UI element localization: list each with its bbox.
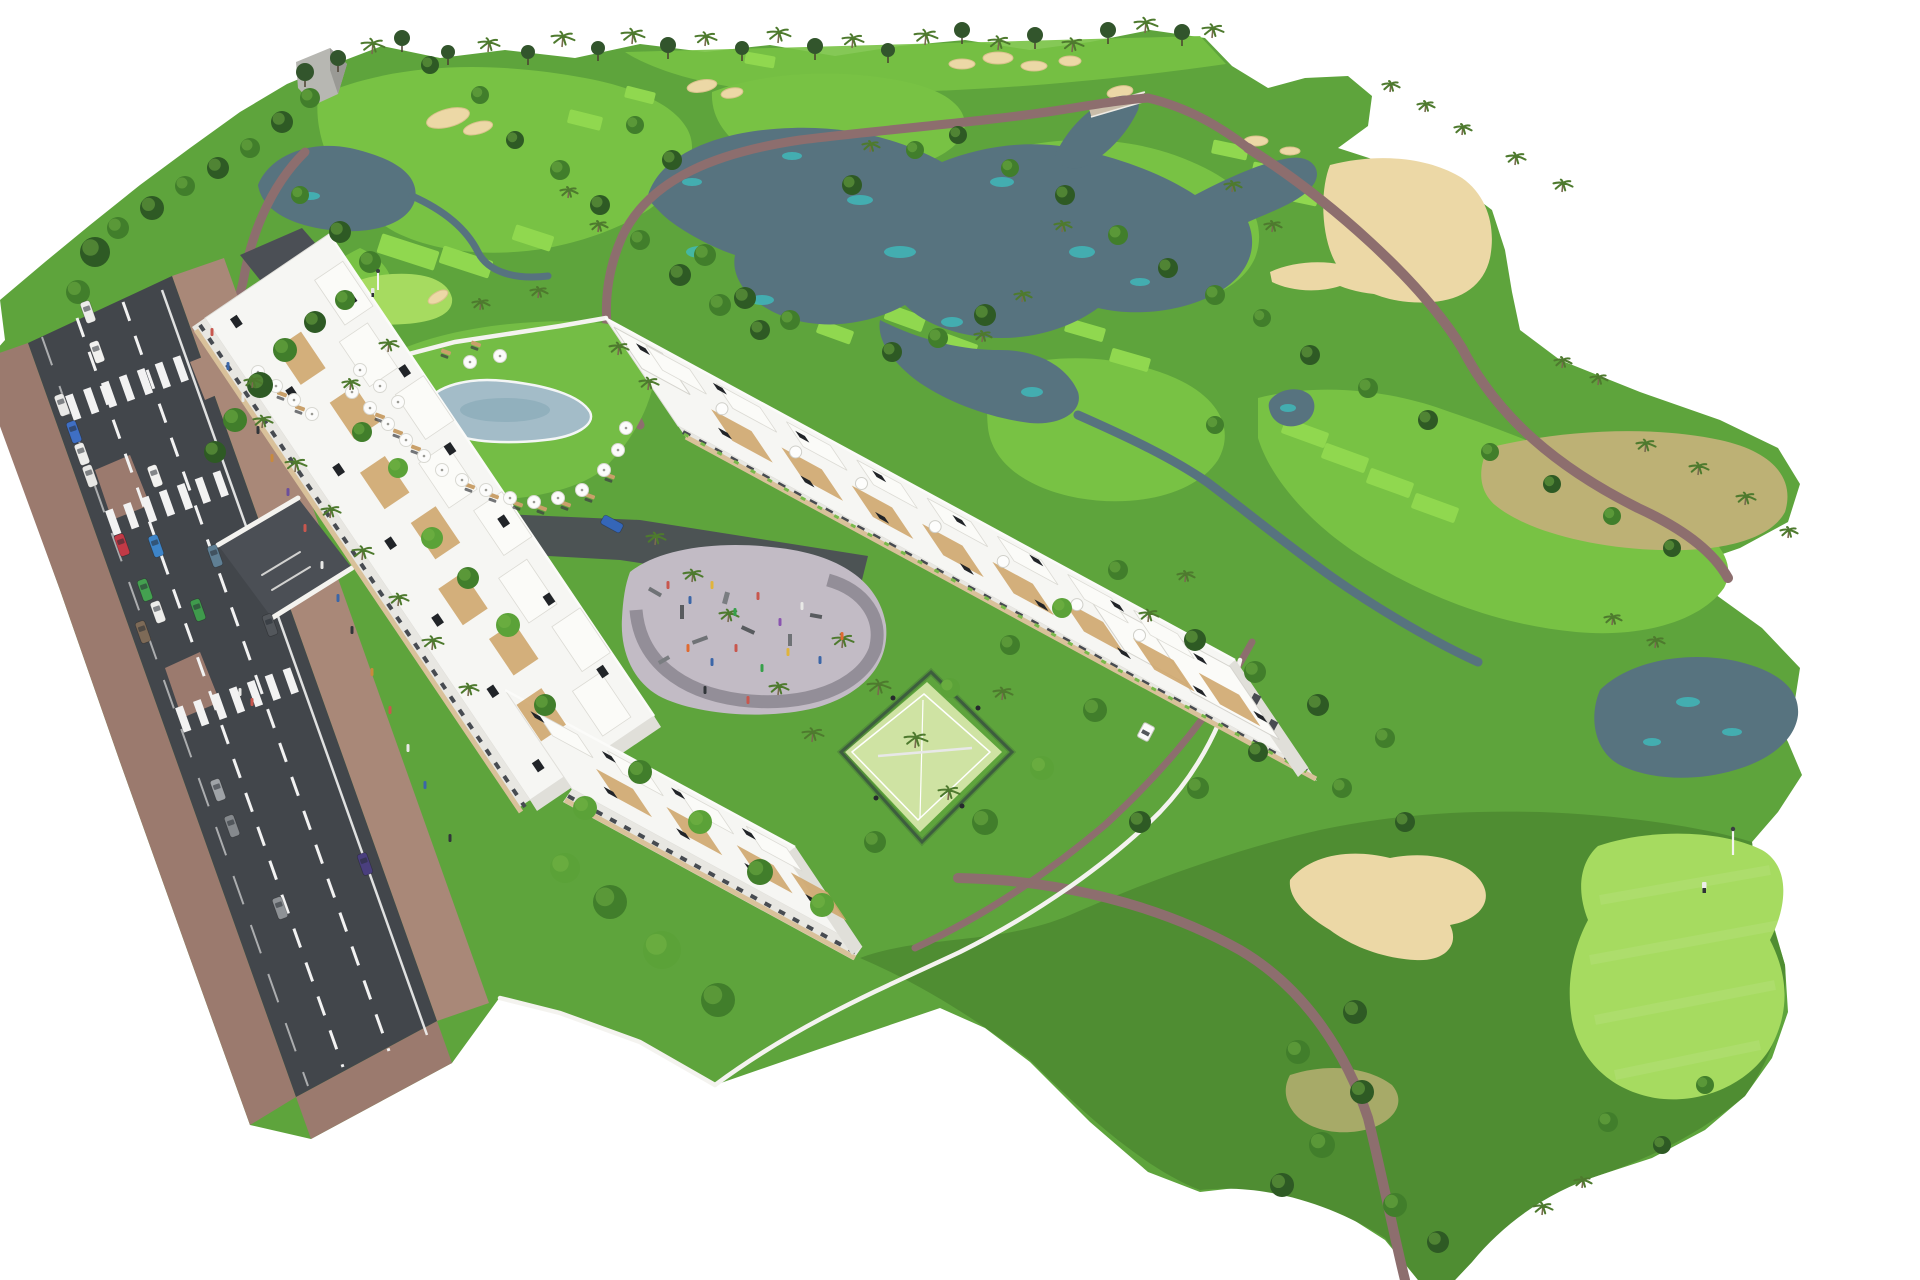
shallow-water-patch xyxy=(1130,278,1150,286)
aerial-render-golf-resort xyxy=(0,0,1920,1280)
person xyxy=(761,664,764,672)
horizon-tree xyxy=(591,41,605,55)
horizon-tree xyxy=(296,63,314,81)
person xyxy=(251,698,254,706)
play-equipment xyxy=(680,605,684,619)
person xyxy=(337,594,340,602)
bunker xyxy=(1280,147,1300,155)
person xyxy=(687,644,690,652)
shallow-water-patch xyxy=(1021,387,1043,397)
bunker xyxy=(1021,61,1047,71)
person xyxy=(449,834,452,842)
shallow-water-patch xyxy=(884,246,916,258)
horizon-tree xyxy=(881,43,895,57)
person xyxy=(689,596,692,604)
person xyxy=(735,644,738,652)
person xyxy=(819,656,822,664)
person xyxy=(227,362,230,370)
person xyxy=(257,426,260,434)
horizon-tree xyxy=(1174,24,1190,40)
person xyxy=(779,618,782,626)
horizon-tree xyxy=(521,45,535,59)
person xyxy=(424,781,427,789)
shallow-water-patch xyxy=(847,195,873,205)
shallow-water-patch xyxy=(782,152,802,160)
person xyxy=(389,706,392,714)
horizon-tree xyxy=(394,30,410,46)
person xyxy=(271,454,274,462)
horizon-tree xyxy=(660,37,676,53)
shallow-water-patch xyxy=(1280,404,1296,412)
scene-svg xyxy=(0,0,1920,1280)
person xyxy=(407,744,410,752)
person xyxy=(787,648,790,656)
roof-parasol xyxy=(929,521,941,533)
shallow-water-patch xyxy=(1722,728,1742,736)
shallow-water-patch xyxy=(1643,738,1661,746)
horizon-tree xyxy=(954,22,970,38)
person xyxy=(841,632,844,640)
horizon-tree xyxy=(330,50,346,66)
person xyxy=(287,488,290,496)
person xyxy=(321,561,324,569)
roof-parasol xyxy=(855,477,867,489)
pool-deep-end xyxy=(460,398,550,422)
bunker xyxy=(983,52,1013,64)
person xyxy=(239,688,242,696)
person xyxy=(667,581,670,589)
person xyxy=(711,658,714,666)
roof-parasol xyxy=(790,446,802,458)
person xyxy=(801,602,804,610)
horizon-tree xyxy=(1027,27,1043,43)
person xyxy=(211,328,214,336)
horizon-tree xyxy=(735,41,749,55)
roof-parasol xyxy=(716,403,728,415)
horizon-tree xyxy=(441,45,455,59)
bunker xyxy=(1059,56,1081,66)
shallow-water-patch xyxy=(990,177,1014,187)
horizon-tree xyxy=(807,38,823,54)
roof-parasol xyxy=(1133,629,1145,641)
person xyxy=(747,696,750,704)
person xyxy=(371,668,374,676)
playground xyxy=(622,545,887,715)
person xyxy=(711,581,714,589)
person xyxy=(704,686,707,694)
roof-parasol xyxy=(997,555,1009,567)
shallow-water-patch xyxy=(1676,697,1700,707)
horizon-tree xyxy=(1100,22,1116,38)
shallow-water-patch xyxy=(682,178,702,186)
shallow-water-patch xyxy=(941,317,963,327)
person xyxy=(304,524,307,532)
person xyxy=(757,592,760,600)
golfer-2 xyxy=(1702,882,1707,889)
shallow-water-patch xyxy=(1069,246,1095,258)
play-equipment xyxy=(788,634,792,646)
bunker xyxy=(949,59,975,69)
roof-parasol xyxy=(1071,599,1083,611)
person xyxy=(242,394,245,402)
person xyxy=(351,626,354,634)
person xyxy=(734,608,737,616)
